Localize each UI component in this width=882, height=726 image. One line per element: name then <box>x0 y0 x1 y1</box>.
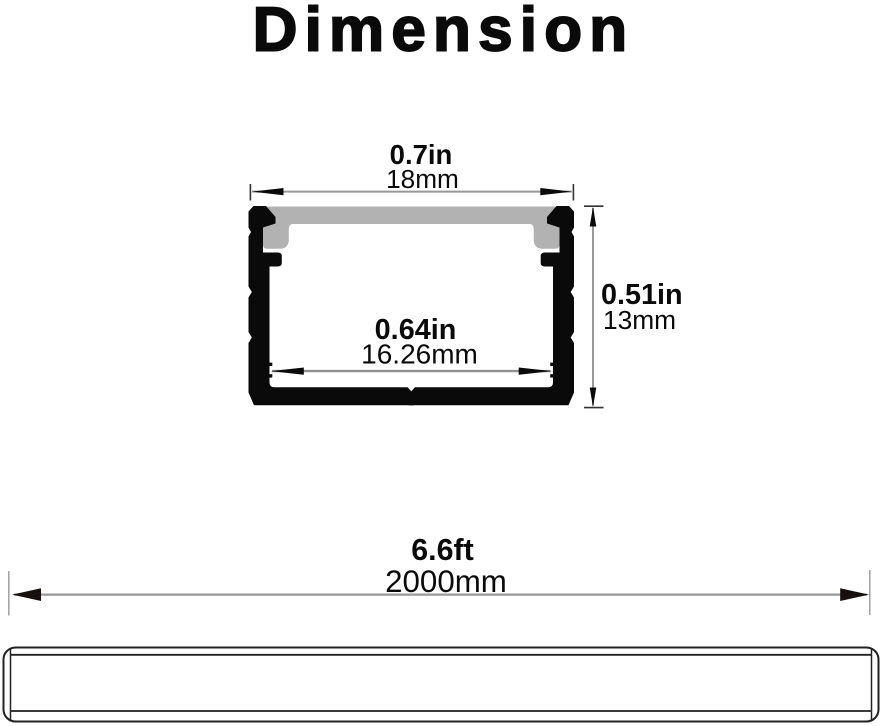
svg-text:16.26mm: 16.26mm <box>361 339 478 370</box>
svg-text:6.6ft: 6.6ft <box>411 533 474 567</box>
svg-text:18mm: 18mm <box>386 164 459 194</box>
svg-text:13mm: 13mm <box>603 305 676 335</box>
svg-text:Dimension: Dimension <box>253 0 635 65</box>
